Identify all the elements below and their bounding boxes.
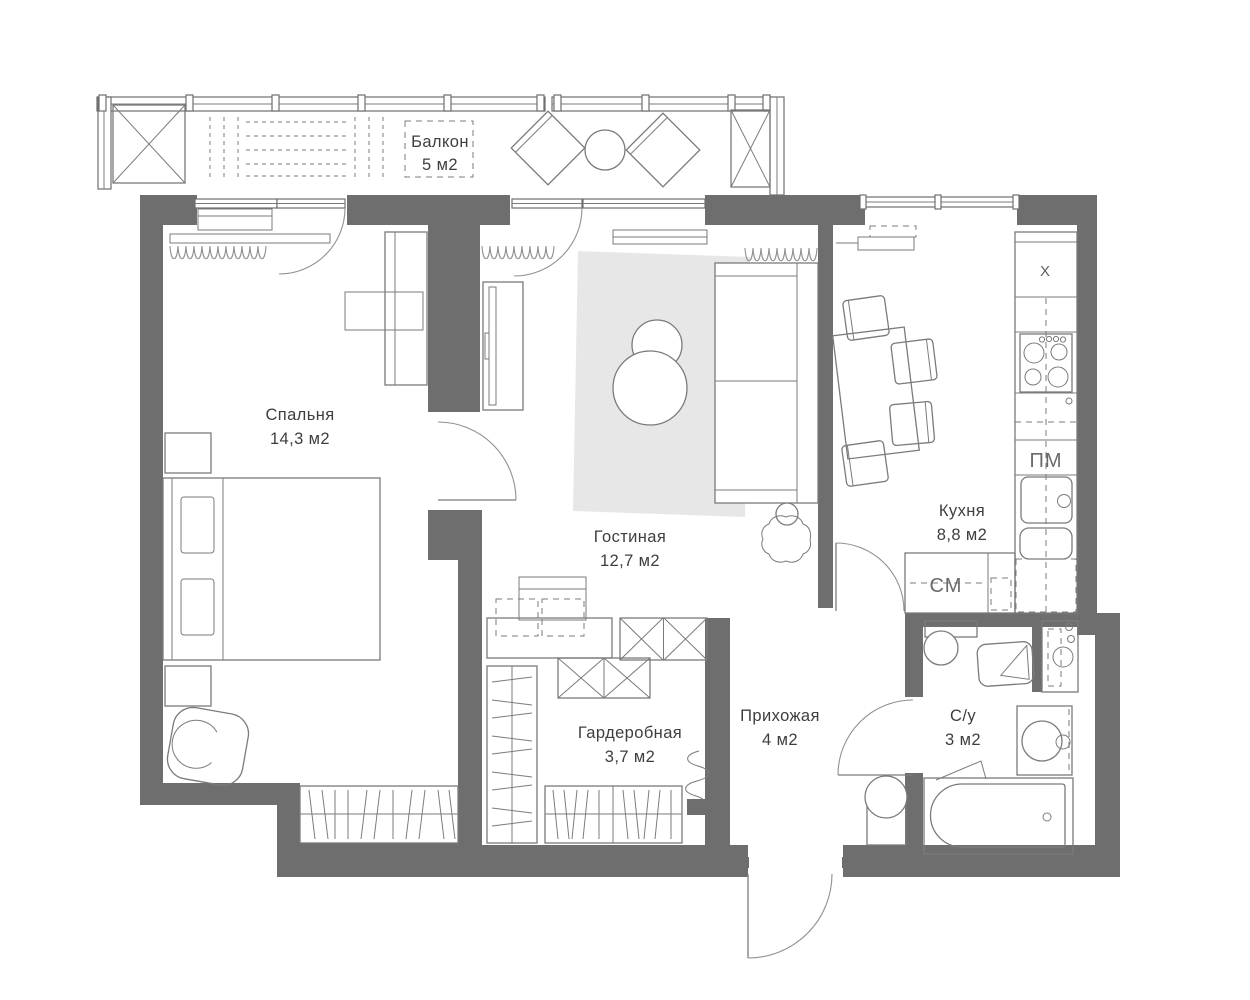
curtain-icon (745, 248, 817, 261)
balcony-area-label: 5 м2 (422, 156, 458, 174)
balcony-cabinet-right (731, 110, 770, 187)
curtain-rod (170, 234, 330, 259)
bathroom-area-label: 3 м2 (945, 731, 981, 749)
living-window (583, 199, 707, 244)
sofa (715, 263, 818, 503)
wardrobe-name: Гардеробная (578, 724, 682, 742)
vanity-niche (1042, 621, 1078, 692)
balcony-name: Балкон (411, 133, 469, 151)
toilet (924, 621, 977, 665)
living-balcony-door (512, 199, 582, 276)
armchair (164, 704, 251, 788)
dining-chair (841, 440, 888, 486)
dining-chair (889, 401, 934, 446)
kitchen-counter-column (1015, 232, 1077, 613)
kitchen-area-label: 8,8 м2 (937, 526, 987, 544)
bedroom-tall-cabinet (345, 232, 427, 385)
shower-bench (977, 641, 1035, 687)
balcony-slat-bench (210, 117, 383, 177)
bedroom-name: Спальня (265, 406, 334, 424)
wardrobe-area-label: 3,7 м2 (605, 748, 655, 766)
wardrobe-rail-bottom (545, 786, 682, 843)
bedroom-balcony-door (277, 199, 345, 274)
balcony-cabinet-left (113, 105, 185, 183)
kitchen-shelf (836, 226, 916, 250)
washing-machine-label: СМ (930, 575, 963, 597)
balcony-pouf-right (626, 113, 700, 187)
drawer-unit-x (620, 618, 707, 660)
tv-unit (483, 282, 523, 410)
bedroom-door (438, 422, 516, 500)
kitchen-area (833, 226, 1077, 613)
floor-plan-drawing: Балкон 5 м2 Спальня 14,3 м2 Гостиная 12,… (0, 0, 1250, 1000)
balcony-pouf-left (511, 111, 585, 185)
entrance-pouf (865, 776, 907, 845)
stool (776, 503, 798, 525)
living-room-area-label: 12,7 м2 (600, 552, 660, 570)
counter-detail (1066, 398, 1072, 404)
hallway-area-label: 4 м2 (762, 731, 798, 749)
bedroom-closet-hatch (300, 786, 458, 843)
drawer-unit-x-2 (558, 658, 650, 698)
kitchen-window (860, 195, 1019, 209)
bathroom-name: С/у (950, 707, 976, 725)
appliance-labels: X ПМ СМ (930, 263, 1063, 597)
bed (163, 478, 380, 660)
fridge-label: X (1040, 263, 1050, 280)
floor-plan-canvas: Балкон 5 м2 Спальня 14,3 м2 Гостиная 12,… (0, 0, 1250, 1000)
bathroom-door (838, 700, 913, 775)
balcony-round-table (585, 130, 625, 170)
dishwasher-label: ПМ (1029, 450, 1062, 472)
wardrobe-rail-left (487, 666, 537, 843)
entrance-door (748, 874, 832, 958)
living-room-area (482, 246, 818, 698)
dining-chair (891, 339, 938, 385)
kitchen-door (836, 543, 904, 611)
bedroom-area-label: 14,3 м2 (270, 430, 330, 448)
dining-table (833, 327, 920, 459)
nightstand-top (165, 433, 211, 473)
bedroom-window (195, 199, 277, 230)
curtain-icon (170, 246, 266, 259)
kitchen-name: Кухня (939, 502, 985, 520)
sideboard (487, 577, 612, 658)
hallway-name: Прихожая (740, 707, 820, 725)
living-room-name: Гостиная (594, 528, 666, 546)
nightstand-bottom (165, 666, 211, 706)
washbasin (1017, 706, 1072, 775)
curtain-icon (482, 246, 554, 259)
